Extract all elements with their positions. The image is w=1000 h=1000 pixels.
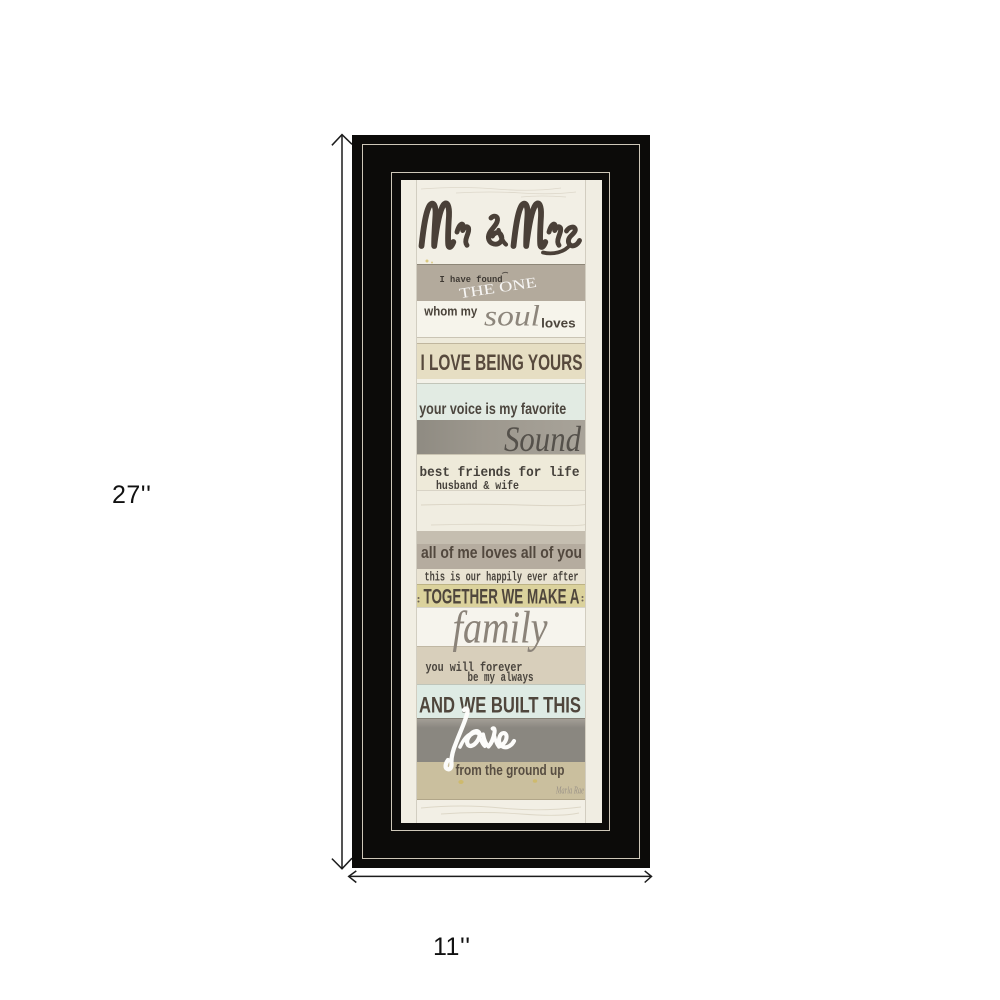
svg-text:Sound: Sound (504, 419, 582, 459)
svg-text:Marla Rae: Marla Rae (556, 784, 585, 796)
svg-text:soul: soul (484, 299, 540, 332)
svg-text:from the ground up: from the ground up (456, 763, 565, 779)
svg-text:your voice is my favorite: your voice is my favorite (419, 401, 566, 418)
svg-text:loves: loves (541, 316, 576, 330)
svg-text:AND WE BUILT THIS: AND WE BUILT THIS (419, 692, 581, 717)
svg-text:family: family (453, 601, 548, 652)
svg-text:husband & wife: husband & wife (436, 479, 519, 493)
svg-text:I LOVE BEING YOURS: I LOVE BEING YOURS (421, 350, 583, 375)
svg-text:all of me loves all of you: all of me loves all of you (421, 543, 582, 562)
svg-text:this is our happily ever after: this is our happily ever after (425, 570, 579, 584)
svg-text:be my always: be my always (468, 670, 534, 685)
svg-text:whom my: whom my (424, 304, 478, 318)
